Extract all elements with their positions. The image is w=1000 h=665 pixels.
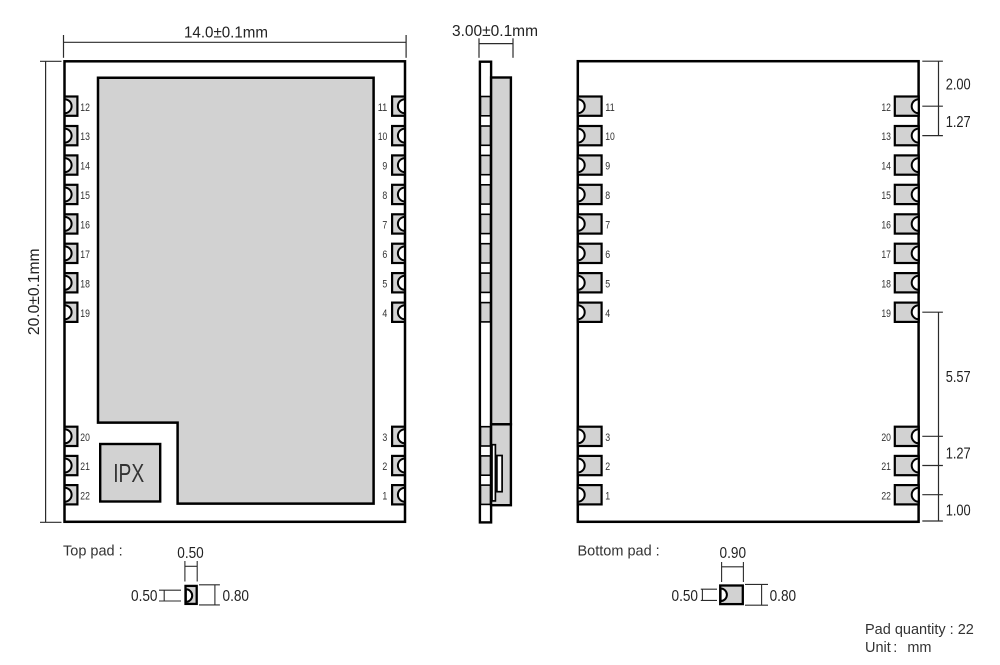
svg-text:22: 22 [881, 490, 891, 502]
svg-text:15: 15 [80, 190, 90, 202]
svg-text:9: 9 [382, 161, 387, 173]
svg-text:2: 2 [605, 461, 610, 473]
svg-text:14.0±0.1mm: 14.0±0.1mm [184, 24, 268, 41]
svg-text:4: 4 [605, 308, 610, 320]
svg-text:19: 19 [881, 308, 891, 320]
svg-text:Bottom pad :: Bottom pad : [578, 544, 660, 560]
svg-text:0.50: 0.50 [131, 588, 158, 605]
svg-text:18: 18 [80, 278, 90, 290]
svg-text:Pad quantity : 22: Pad quantity : 22 [865, 622, 974, 638]
svg-text:3.00±0.1mm: 3.00±0.1mm [452, 23, 538, 40]
svg-text:12: 12 [881, 102, 891, 114]
svg-text:6: 6 [605, 249, 610, 261]
svg-text:2: 2 [382, 461, 387, 473]
svg-text:15: 15 [881, 190, 891, 202]
svg-text:6: 6 [382, 249, 387, 261]
svg-text:5: 5 [605, 278, 610, 290]
svg-text:20.0±0.1mm: 20.0±0.1mm [26, 248, 43, 335]
svg-text:Top pad :: Top pad : [63, 544, 123, 560]
svg-text:0.80: 0.80 [223, 588, 250, 605]
svg-text:0.80: 0.80 [770, 588, 797, 605]
svg-text:22: 22 [80, 490, 90, 502]
svg-text:0.50: 0.50 [177, 545, 204, 562]
svg-text:21: 21 [881, 461, 891, 473]
svg-text:4: 4 [382, 308, 387, 320]
svg-text:16: 16 [881, 220, 891, 232]
svg-text:19: 19 [80, 308, 90, 320]
svg-text:8: 8 [605, 190, 610, 202]
svg-text:10: 10 [605, 131, 615, 143]
svg-text:1: 1 [605, 490, 610, 502]
svg-text:11: 11 [378, 102, 388, 114]
svg-text:14: 14 [881, 161, 891, 173]
svg-text:2.00: 2.00 [946, 76, 971, 93]
svg-text:0.50: 0.50 [672, 588, 699, 605]
svg-text:11: 11 [605, 102, 615, 114]
svg-text:18: 18 [881, 278, 891, 290]
svg-text:17: 17 [881, 249, 891, 261]
svg-text:1.27: 1.27 [946, 445, 971, 462]
svg-text:21: 21 [80, 461, 90, 473]
svg-text:13: 13 [80, 131, 90, 143]
svg-text:5.57: 5.57 [946, 369, 971, 386]
svg-text:5: 5 [382, 278, 387, 290]
svg-text:1: 1 [382, 490, 387, 502]
svg-text:8: 8 [382, 190, 387, 202]
svg-text:1.27: 1.27 [946, 114, 971, 131]
svg-text:7: 7 [382, 220, 387, 232]
svg-text:3: 3 [605, 432, 610, 444]
svg-text:9: 9 [605, 161, 610, 173]
svg-text:3: 3 [382, 432, 387, 444]
svg-text:1.00: 1.00 [946, 502, 971, 519]
svg-text:0.90: 0.90 [720, 545, 747, 562]
svg-text:10: 10 [378, 131, 388, 143]
svg-text:20: 20 [881, 432, 891, 444]
svg-text:13: 13 [881, 131, 891, 143]
svg-text:14: 14 [80, 161, 90, 173]
svg-text:12: 12 [80, 102, 90, 114]
svg-text:7: 7 [605, 220, 610, 232]
svg-text:17: 17 [80, 249, 90, 261]
svg-text:20: 20 [80, 432, 90, 444]
svg-text:IPX: IPX [113, 458, 144, 488]
svg-text:16: 16 [80, 220, 90, 232]
